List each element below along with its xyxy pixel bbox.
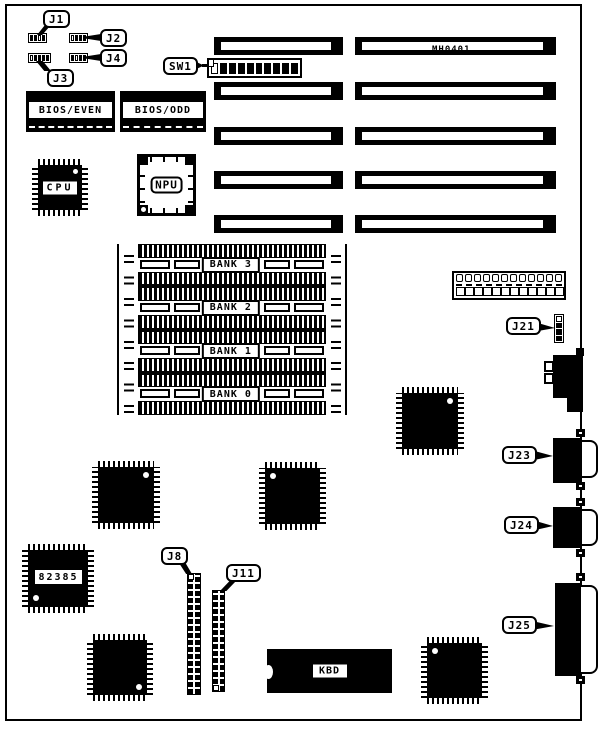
- power-pin: [474, 274, 481, 282]
- socket-corner: [185, 156, 194, 165]
- qfp-chip: [427, 643, 482, 698]
- simm-chip: [140, 346, 170, 355]
- switch-cell: [291, 63, 298, 74]
- power-pin: [537, 274, 544, 282]
- callout-j8: J8: [161, 547, 188, 565]
- expansion-slot: [355, 82, 556, 100]
- cache-chip-label: 82385: [35, 570, 82, 584]
- callout-j1: J1: [43, 10, 70, 28]
- simm-socket: [138, 331, 326, 345]
- j8-pin-header: [187, 573, 201, 695]
- simm-socket: [138, 401, 326, 415]
- callout-j24: J24: [504, 516, 539, 534]
- jumper-cell: [79, 35, 82, 41]
- pin1-dot: [447, 398, 453, 404]
- callout-j3: J3: [47, 69, 74, 87]
- cpu-chip: CPU: [38, 165, 82, 210]
- jumper-cell: [71, 35, 74, 41]
- callout-j2: J2: [100, 29, 127, 47]
- simm-chip: [264, 389, 290, 398]
- qfp-chip: [98, 467, 154, 523]
- simm-chip: [174, 389, 200, 398]
- qfp-chip: [93, 640, 147, 695]
- simm-socket: [138, 358, 326, 372]
- callout-tail: [202, 64, 208, 67]
- kbd-label: KBD: [312, 664, 348, 679]
- expansion-slot: [214, 171, 343, 189]
- bios-even-chip: BIOS/EVEN: [26, 91, 115, 132]
- jumper-cell: [38, 55, 41, 61]
- din-connector-step: [567, 396, 583, 412]
- jumper-cell: [34, 35, 37, 41]
- qfp-chip: [265, 468, 320, 524]
- simm-chip: [294, 389, 324, 398]
- power-pin: [510, 274, 517, 282]
- border-tab: [576, 482, 585, 490]
- din-mount: [544, 361, 554, 372]
- jumper-cell: [556, 316, 562, 322]
- j25-port-outline: [581, 585, 598, 674]
- memory-bank: BANK 0: [138, 374, 326, 415]
- simm-chip: [294, 346, 324, 355]
- pin1-dot: [33, 595, 39, 601]
- npu-socket: NPU: [137, 154, 196, 216]
- jumper-cell: [79, 55, 82, 61]
- expansion-slot: [355, 171, 556, 189]
- jumper-cell: [71, 55, 74, 61]
- motherboard-diagram: MH0401 J1 J2 J3 J4 SW1 BIOS/EVEN BIOS/OD…: [0, 0, 602, 731]
- j23-connector: [553, 438, 582, 483]
- bank-label: BANK 1: [202, 343, 260, 359]
- border-tab: [576, 549, 585, 557]
- j11-pin-header: [212, 590, 225, 692]
- jumper-cell: [34, 55, 37, 61]
- power-pin: [465, 274, 472, 282]
- jumper-cell: [556, 329, 562, 335]
- simm-bank-block: BANK 3 BANK 2: [117, 244, 347, 415]
- border-tab: [576, 498, 585, 506]
- sw1-dip-switch: [207, 58, 302, 78]
- simm-socket: [138, 287, 326, 301]
- j21-jumper-block: [554, 314, 564, 343]
- jumper-cell: [42, 55, 45, 61]
- jumper-cell: [46, 55, 49, 61]
- switch-cell: [264, 63, 271, 74]
- switch-cell: [220, 63, 227, 74]
- simm-chip: [174, 260, 200, 269]
- bank-label: BANK 0: [202, 386, 260, 402]
- border-tab: [576, 676, 585, 684]
- power-pin: [546, 274, 553, 282]
- power-pin: [519, 274, 526, 282]
- memory-bank: BANK 3: [138, 244, 326, 287]
- bank-label: BANK 3: [202, 257, 260, 273]
- kbd-controller-chip: KBD: [267, 649, 392, 693]
- bios-even-label: BIOS/EVEN: [29, 102, 112, 118]
- switch-cell: [282, 63, 289, 74]
- pin1-dot: [141, 207, 146, 212]
- expansion-slot: [214, 127, 343, 145]
- switch-cell: [273, 63, 280, 74]
- callout-j23: J23: [502, 446, 537, 464]
- callout-sw1: SW1: [163, 57, 198, 75]
- callout-j4: J4: [100, 49, 127, 67]
- switch-cell: [238, 63, 245, 74]
- switch-cell: [247, 63, 254, 74]
- bios-odd-label: BIOS/ODD: [123, 102, 203, 118]
- simm-chip: [174, 303, 200, 312]
- power-pin: [501, 274, 508, 282]
- jumper-cell: [42, 35, 45, 41]
- pin1-dot: [73, 169, 78, 174]
- power-pin: [483, 274, 490, 282]
- expansion-slot: [214, 215, 343, 233]
- jumper-cell: [75, 55, 78, 61]
- power-pin: [528, 274, 535, 282]
- jumper-cell: [556, 336, 562, 342]
- simm-chip: [174, 346, 200, 355]
- j24-connector: [553, 507, 582, 548]
- pin1-dot: [432, 648, 438, 654]
- simm-chip: [264, 346, 290, 355]
- bank-label: BANK 2: [202, 300, 260, 316]
- power-pin-row: [456, 274, 562, 283]
- pin1-dot: [143, 472, 149, 478]
- callout-j21: J21: [506, 317, 541, 335]
- jumper-cell: [30, 55, 33, 61]
- border-tab: [576, 429, 585, 437]
- socket-corner: [139, 156, 148, 165]
- simm-chip: [294, 303, 324, 312]
- power-connector: [452, 271, 566, 300]
- switch-pin1-marker: [209, 60, 214, 67]
- pin1-dot: [270, 473, 276, 479]
- simm-rail: [117, 244, 138, 415]
- cpu-label: CPU: [43, 181, 77, 194]
- simm-chip: [140, 389, 170, 398]
- simm-chip: [264, 260, 290, 269]
- power-socket-row: [456, 287, 565, 296]
- callout-j11: J11: [226, 564, 261, 582]
- power-pin: [456, 274, 463, 282]
- jumper-cell: [30, 35, 33, 41]
- cache-chip-82385: 82385: [28, 550, 88, 607]
- simm-chip: [294, 260, 324, 269]
- jumper-cell: [556, 323, 562, 329]
- expansion-slot: [355, 127, 556, 145]
- j25-connector: [555, 583, 581, 676]
- j23-port-outline: [582, 440, 598, 478]
- simm-chip: [264, 303, 290, 312]
- expansion-slot: [355, 215, 556, 233]
- simm-socket: [138, 315, 326, 329]
- power-pin: [555, 274, 562, 282]
- qfp-chip: [402, 393, 458, 449]
- bios-odd-chip: BIOS/ODD: [120, 91, 206, 132]
- simm-chip: [140, 303, 170, 312]
- callout-j25: J25: [502, 616, 537, 634]
- pin1-dot: [136, 684, 142, 690]
- simm-socket: [138, 272, 326, 286]
- border-tab: [576, 573, 585, 581]
- socket-corner: [185, 205, 194, 214]
- npu-label: NPU: [150, 177, 183, 194]
- power-pin: [492, 274, 499, 282]
- din-connector: [553, 355, 583, 398]
- memory-bank: BANK 1: [138, 331, 326, 374]
- simm-chip: [140, 260, 170, 269]
- simm-socket: [138, 374, 326, 388]
- power-divider: [456, 284, 562, 286]
- switch-cell: [229, 63, 236, 74]
- jumper-cell: [75, 35, 78, 41]
- simm-rail: [326, 244, 347, 415]
- chip-notch: [264, 665, 273, 679]
- din-mount: [544, 373, 554, 384]
- expansion-slot: [214, 37, 343, 55]
- board-model-label: MH0401: [432, 45, 471, 55]
- jumper-cell: [38, 35, 41, 41]
- j24-port-outline: [582, 509, 598, 546]
- expansion-slot: [214, 82, 343, 100]
- simm-socket: [138, 244, 326, 258]
- memory-bank: BANK 2: [138, 287, 326, 330]
- switch-cell: [256, 63, 263, 74]
